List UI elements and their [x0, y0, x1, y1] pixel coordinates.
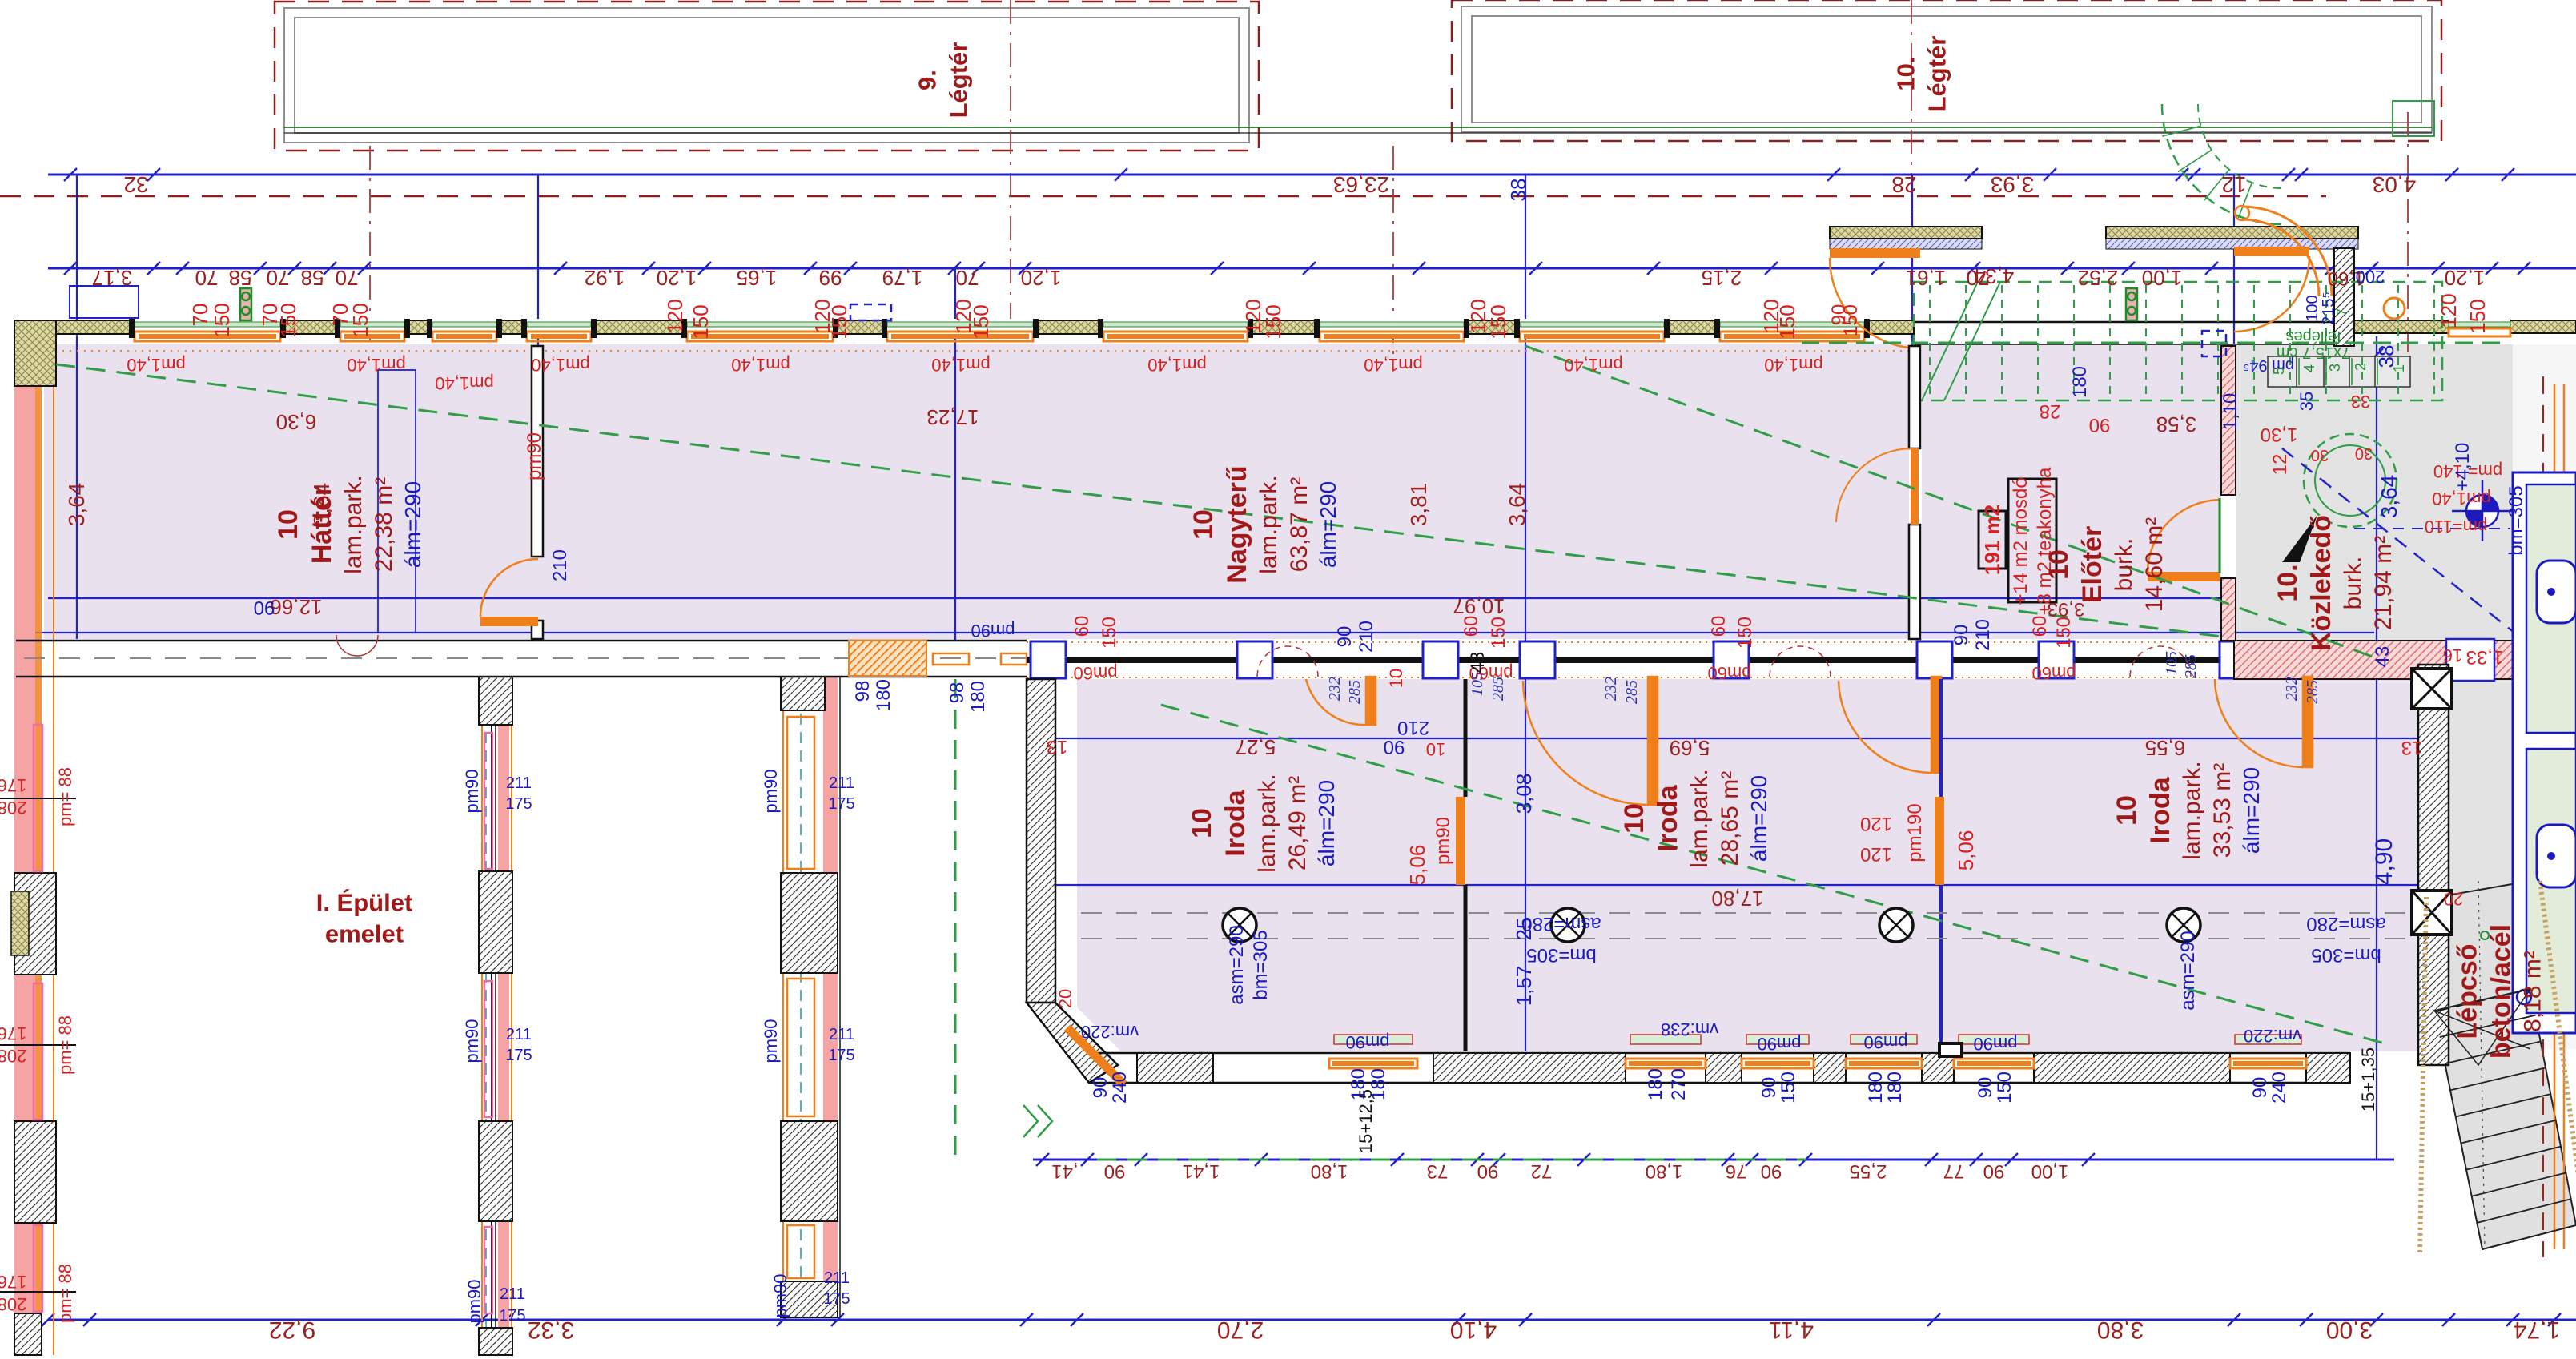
floorplan-drawing: [0, 0, 2576, 1359]
floor-fills: [44, 344, 2576, 1249]
legter-boxes: [0, 0, 2441, 370]
upper-wing-south-wall: [16, 635, 1027, 677]
floorplan-canvas: { "drawing": { "palette": { "room_fill":…: [0, 0, 2576, 1359]
green-post-icon: [240, 288, 2137, 320]
wc-fixtures: [2513, 472, 2576, 1033]
